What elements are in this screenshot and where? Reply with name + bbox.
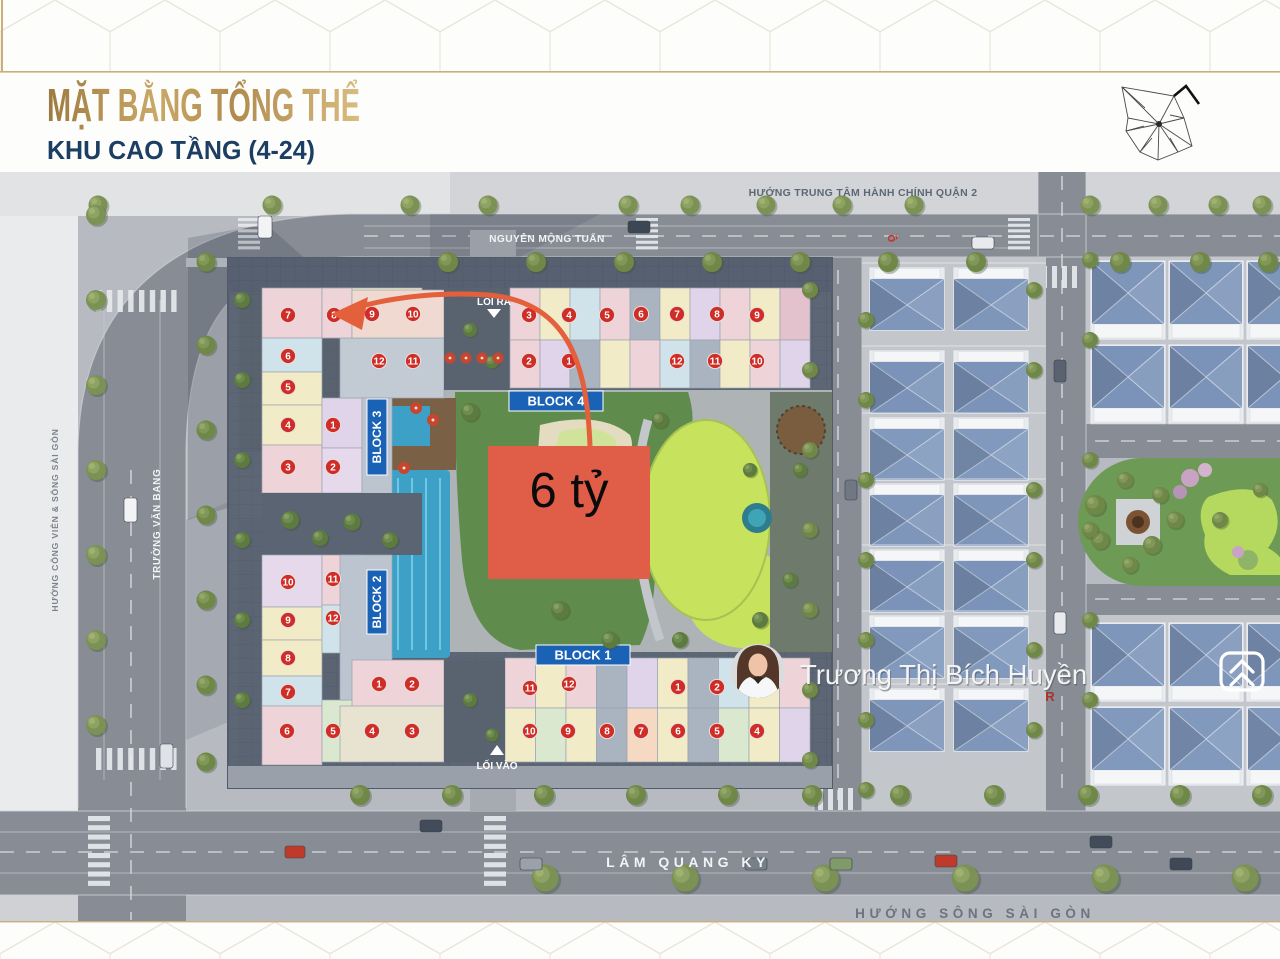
svg-text:LỐI VÀO: LỐI VÀO	[476, 758, 517, 772]
svg-text:11: 11	[408, 356, 419, 367]
svg-text:2: 2	[330, 462, 336, 473]
svg-text:8: 8	[285, 653, 291, 664]
svg-text:6: 6	[638, 309, 644, 320]
svg-text:Trương Thị Bích Huyền: Trương Thị Bích Huyền	[800, 659, 1087, 690]
svg-text:7: 7	[285, 687, 291, 698]
svg-text:BLOCK 1: BLOCK 1	[554, 648, 611, 663]
svg-text:12: 12	[327, 613, 339, 624]
svg-text:5: 5	[604, 310, 610, 321]
svg-text:5: 5	[285, 382, 291, 393]
svg-text:7: 7	[285, 310, 291, 321]
svg-text:2: 2	[714, 682, 720, 693]
svg-text:10: 10	[751, 356, 763, 367]
svg-text:1: 1	[566, 356, 572, 367]
svg-text:9: 9	[285, 615, 291, 626]
svg-text:4: 4	[369, 726, 375, 737]
svg-text:HƯỚNG TRUNG TÂM HÀNH CHÍNH QUẬ: HƯỚNG TRUNG TÂM HÀNH CHÍNH QUẬN 2	[749, 186, 978, 199]
svg-text:6 tỷ: 6 tỷ	[530, 464, 609, 518]
svg-text:BLOCK 3: BLOCK 3	[370, 410, 384, 463]
svg-text:HƯỚNG CÔNG VIÊN & SÔNG SÀI GÒN: HƯỚNG CÔNG VIÊN & SÔNG SÀI GÒN	[49, 428, 60, 611]
svg-text:NGUYỄN MỘNG TUẤN: NGUYỄN MỘNG TUẤN	[489, 232, 605, 245]
svg-text:12: 12	[563, 679, 575, 690]
svg-text:9: 9	[369, 309, 375, 320]
svg-text:3: 3	[526, 310, 532, 321]
svg-text:6: 6	[285, 351, 291, 362]
svg-text:9: 9	[754, 310, 760, 321]
svg-text:KHU CAO TẦNG (4-24): KHU CAO TẦNG (4-24)	[47, 135, 315, 165]
svg-text:11: 11	[525, 683, 536, 694]
svg-text:BLOCK 2: BLOCK 2	[370, 575, 384, 628]
svg-text:MẶT BẰNG TỔNG THỂ: MẶT BẰNG TỔNG THỂ	[47, 79, 360, 131]
svg-text:2: 2	[409, 679, 415, 690]
svg-text:11: 11	[328, 574, 339, 585]
svg-text:12: 12	[373, 356, 385, 367]
svg-text:1: 1	[330, 420, 336, 431]
svg-text:4: 4	[566, 310, 572, 321]
svg-text:4: 4	[285, 420, 291, 431]
svg-text:4: 4	[754, 726, 760, 737]
svg-text:11: 11	[710, 356, 721, 367]
svg-text:LÂM QUANG KY: LÂM QUANG KY	[606, 853, 770, 870]
svg-text:1: 1	[376, 679, 382, 690]
svg-text:10: 10	[282, 577, 294, 588]
svg-text:8: 8	[604, 726, 610, 737]
svg-text:3: 3	[285, 462, 291, 473]
svg-text:10: 10	[407, 309, 419, 320]
svg-text:6: 6	[284, 726, 290, 737]
svg-text:5: 5	[330, 726, 336, 737]
svg-text:8: 8	[714, 309, 720, 320]
svg-text:6: 6	[675, 726, 681, 737]
svg-text:5: 5	[714, 726, 720, 737]
svg-text:9: 9	[565, 726, 571, 737]
svg-text:BLOCK 4: BLOCK 4	[527, 394, 585, 409]
svg-text:2: 2	[526, 356, 532, 367]
svg-text:7: 7	[638, 726, 644, 737]
svg-text:10: 10	[524, 726, 536, 737]
svg-text:TRƯỜNG VĂN BANG: TRƯỜNG VĂN BANG	[151, 468, 163, 579]
svg-text:3: 3	[409, 726, 415, 737]
svg-text:7: 7	[674, 309, 680, 320]
svg-text:HƯỚNG SÔNG SÀI GÒN: HƯỚNG SÔNG SÀI GÒN	[855, 906, 1095, 921]
svg-text:1: 1	[675, 682, 681, 693]
svg-text:12: 12	[671, 356, 683, 367]
